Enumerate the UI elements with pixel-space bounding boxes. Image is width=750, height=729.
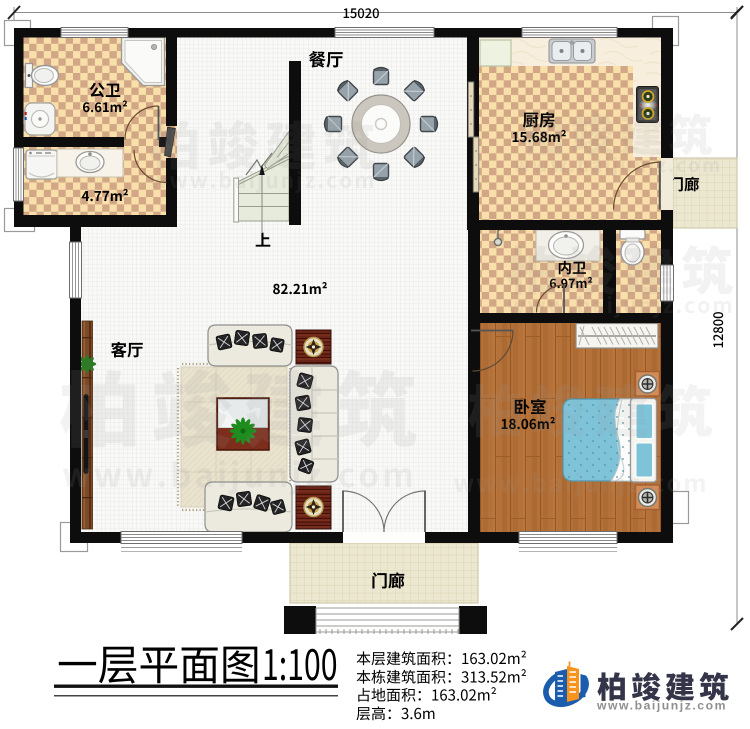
svg-text:www.baijunjz.com: www.baijunjz.com [596, 699, 727, 713]
